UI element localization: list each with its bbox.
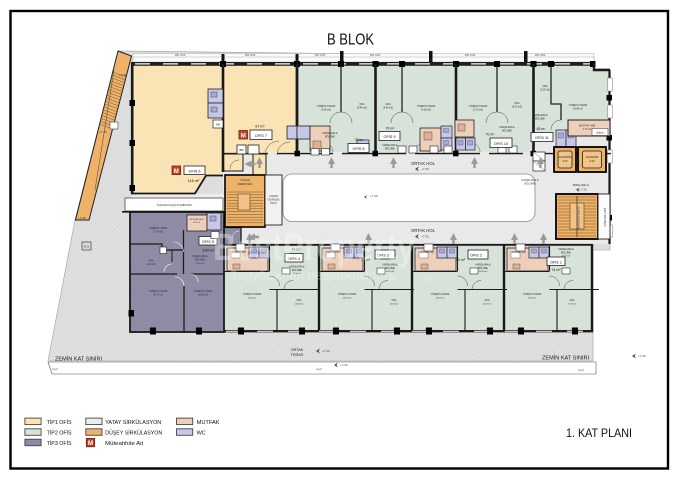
svg-text:NİŞ.ÇK.: NİŞ.ÇK. — [486, 328, 494, 331]
svg-text:OFİS 7: OFİS 7 — [255, 133, 267, 138]
svg-text:KARŞILAMA &: KARŞILAMA & — [322, 132, 338, 135]
svg-text:OFİS 10: OFİS 10 — [494, 141, 508, 146]
svg-text:16.80 m2: 16.80 m2 — [198, 294, 208, 296]
svg-text:17.72 m2: 17.72 m2 — [568, 303, 578, 305]
svg-text:286 CM6: 286 CM6 — [175, 53, 186, 57]
svg-text:SERVİS MERDİVENİ: SERVİS MERDİVENİ — [577, 207, 580, 230]
svg-text:OFİS 11: OFİS 11 — [535, 135, 549, 140]
svg-text:+7.30: +7.30 — [99, 130, 107, 134]
svg-text:1. KAT PLANI: 1. KAT PLANI — [566, 428, 632, 440]
svg-text:TERAS: TERAS — [291, 353, 304, 357]
svg-text:NİŞ.ÇK.: NİŞ.ÇK. — [237, 328, 245, 331]
svg-text:(6.39 m2): (6.39 m2) — [321, 109, 331, 111]
svg-text:YÖNETİCİ ODASI: YÖNETİCİ ODASI — [338, 293, 357, 296]
svg-text:(2.70 m2): (2.70 m2) — [473, 109, 483, 111]
svg-text:Зарубежная недвижимость: Зарубежная недвижимость — [230, 268, 396, 283]
svg-text:D.3: D.3 — [84, 245, 89, 249]
svg-text:YÖNETİCİ ODASI: YÖNETİCİ ODASI — [149, 227, 168, 230]
svg-text:M: M — [241, 133, 246, 139]
svg-text:YANGIN KAÇIŞ KORİDORU: YANGIN KAÇIŞ KORİDORU — [156, 202, 192, 207]
svg-text:seçil: seçil — [52, 367, 58, 371]
svg-text:116 m²: 116 m² — [188, 179, 200, 183]
svg-text:BİNA HOLÜ: BİNA HOLÜ — [573, 182, 589, 187]
svg-text:WC: WC — [197, 431, 207, 437]
svg-text:TİP3 OFİS: TİP3 OFİS — [47, 440, 72, 447]
svg-text:286 CM6: 286 CM6 — [370, 53, 381, 57]
svg-text:ODA: ODA — [515, 102, 520, 105]
svg-text:9.10 m2: 9.10 m2 — [147, 264, 156, 266]
svg-text:BB: BB — [239, 148, 243, 152]
svg-text:düğüm: düğüm — [596, 131, 604, 135]
svg-text:ODA: ODA — [543, 85, 548, 88]
svg-text:MUTFAK NİŞİ: MUTFAK NİŞİ — [420, 251, 434, 254]
svg-text:NİŞ.ÇK.: NİŞ.ÇK. — [571, 328, 579, 331]
svg-text:ASANSÖR: ASANSÖR — [559, 155, 572, 159]
svg-text:seçil: seçil — [316, 367, 322, 371]
svg-text:B BLOK: B BLOK — [327, 32, 374, 49]
svg-text:14.20 m2: 14.20 m2 — [483, 303, 493, 305]
svg-text:14.20 m2: 14.20 m2 — [295, 303, 305, 305]
svg-text:286 CM6: 286 CM6 — [535, 53, 546, 57]
svg-text:(9.49 m2): (9.49 m2) — [357, 107, 367, 109]
svg-text:BÖLÜME: BÖLÜME — [195, 259, 205, 262]
svg-text:KARŞILAMA &: KARŞILAMA & — [192, 255, 208, 258]
svg-text:MUTFAK: MUTFAK — [197, 420, 220, 426]
svg-text:TİP1 OFİS: TİP1 OFİS — [47, 419, 72, 426]
svg-text:HOLÜ: HOLÜ — [270, 202, 277, 205]
svg-text:(7.75 m2): (7.75 m2) — [153, 231, 163, 233]
svg-text:BestProperty: BestProperty — [213, 227, 415, 269]
svg-text:+7.30: +7.30 — [322, 349, 330, 353]
svg-text:YÖNETİCİ ODASI: YÖNETİCİ ODASI — [317, 105, 336, 108]
svg-text:6.30: 6.30 — [590, 160, 595, 163]
svg-text:(9.70 m2): (9.70 m2) — [512, 106, 522, 108]
svg-text:YÖNETİCİ ODASI: YÖNETİCİ ODASI — [243, 293, 262, 296]
svg-text:+7.30: +7.30 — [340, 363, 348, 367]
svg-text:(9.90 m2): (9.90 m2) — [196, 263, 205, 265]
svg-text:29.60 m2: 29.60 m2 — [528, 297, 538, 299]
svg-text:+7.30: +7.30 — [638, 354, 646, 358]
svg-text:ODA: ODA — [360, 103, 365, 106]
svg-text:ODA: ODA — [570, 299, 575, 302]
svg-text:14.20 m2: 14.20 m2 — [390, 303, 400, 305]
svg-text:ZEMİN KAT SINIRI: ZEMİN KAT SINIRI — [542, 355, 589, 362]
svg-text:70 m²: 70 m² — [355, 138, 365, 142]
svg-text:YÖNETİCİ ODASI: YÖNETİCİ ODASI — [194, 290, 213, 293]
svg-text:+7.30: +7.30 — [421, 167, 429, 171]
svg-text:286 CM6: 286 CM6 — [245, 53, 256, 57]
svg-text:24.00 m2: 24.00 m2 — [436, 297, 446, 299]
svg-text:74 m²: 74 m² — [551, 268, 561, 272]
svg-text:(6.39 m2): (6.39 m2) — [421, 109, 431, 111]
svg-text:OFİS 6: OFİS 6 — [188, 168, 200, 173]
svg-text:YATAY SİRKÜLASYON: YATAY SİRKÜLASYON — [105, 419, 161, 426]
svg-text:(9.49 m2): (9.49 m2) — [383, 107, 393, 109]
svg-text:+7.30: +7.30 — [579, 188, 587, 192]
svg-text:BÖLÜME: BÖLÜME — [561, 251, 571, 254]
svg-text:+7.30: +7.30 — [370, 194, 378, 198]
svg-text:YÖNETİCİ ODASI: YÖNETİCİ ODASI — [149, 290, 168, 293]
svg-text:ZEMİN KAT SINIRI: ZEMİN KAT SINIRI — [55, 356, 102, 363]
svg-text:ORTAK HOL: ORTAK HOL — [411, 161, 435, 166]
svg-text:20.95 m2: 20.95 m2 — [573, 108, 583, 110]
svg-text:ODA: ODA — [386, 103, 391, 106]
svg-text:4.76 m2: 4.76 m2 — [583, 128, 592, 131]
svg-text:KARŞILAMA &: KARŞILAMA & — [521, 178, 538, 182]
svg-text:MUTFAK NİŞİ: MUTFAK NİŞİ — [512, 251, 526, 254]
svg-text:seçil: seçil — [578, 368, 584, 372]
svg-text:BÖLÜME: BÖLÜME — [385, 147, 395, 150]
svg-text:Müteahhite Ait: Müteahhite Ait — [105, 441, 143, 447]
svg-text:70 m²: 70 m² — [486, 133, 496, 137]
svg-text:KARŞILAMA &: KARŞILAMA & — [475, 264, 491, 267]
svg-text:NİŞ.ÇK.: NİŞ.ÇK. — [298, 328, 306, 331]
svg-text:NİŞ.ÇK.: NİŞ.ÇK. — [393, 328, 401, 331]
svg-text:24.00 m2: 24.00 m2 — [248, 297, 258, 299]
svg-text:ODA: ODA — [149, 260, 154, 263]
svg-text:NİŞ.ÇK.: NİŞ.ÇK. — [195, 328, 203, 331]
svg-text:(1.30 m2): (1.30 m2) — [540, 89, 550, 91]
svg-text:OFİS 1: OFİS 1 — [550, 259, 562, 264]
svg-text:YÖNETİCİ ODASI: YÖNETİCİ ODASI — [417, 105, 436, 108]
svg-text:YÖNETİCİ ODASI: YÖNETİCİ ODASI — [523, 293, 542, 296]
svg-text:63 m²: 63 m² — [537, 127, 547, 131]
svg-text:KARŞILAMA &: KARŞILAMA & — [558, 248, 574, 251]
svg-text:KARŞILAMA &: KARŞILAMA & — [382, 144, 398, 147]
svg-text:YÖNETİCİ ODASI: YÖNETİCİ ODASI — [569, 104, 588, 107]
svg-text:YÖNETİCİ ODASI: YÖNETİCİ ODASI — [469, 105, 488, 108]
svg-text:TİP2 OFİS: TİP2 OFİS — [47, 430, 72, 437]
svg-text:70 m²: 70 m² — [386, 127, 396, 131]
svg-text:286 CM6: 286 CM6 — [315, 53, 326, 57]
svg-text:26.75 m2: 26.75 m2 — [153, 294, 163, 296]
svg-text:NİŞ.ÇK.: NİŞ.ÇK. — [332, 328, 340, 331]
svg-text:ODA: ODA — [485, 299, 490, 302]
svg-text:BÖLÜME: BÖLÜME — [325, 135, 335, 138]
svg-text:ODA: ODA — [297, 299, 302, 302]
svg-text:BÖLÜME: BÖLÜME — [535, 117, 545, 120]
svg-text:+4.00: +4.00 — [119, 73, 127, 77]
svg-text:BÖLÜME: BÖLÜME — [478, 267, 488, 270]
svg-text:M: M — [174, 169, 179, 175]
svg-text:ASANSÖR: ASANSÖR — [586, 155, 599, 159]
svg-text:ODA: ODA — [392, 299, 397, 302]
svg-text:67 m²: 67 m² — [255, 125, 265, 129]
svg-text:NİŞ.ÇK.: NİŞ.ÇK. — [517, 328, 525, 331]
svg-text:KARŞILAMA &: KARŞILAMA & — [499, 126, 515, 129]
svg-text:OFİS 9: OFİS 9 — [383, 134, 395, 139]
svg-text:YANGIN: YANGIN — [240, 178, 250, 182]
svg-text:OFİS 8: OFİS 8 — [352, 146, 364, 151]
svg-text:BÖLÜME: BÖLÜME — [525, 182, 536, 186]
svg-text:+7.30: +7.30 — [421, 235, 429, 239]
svg-text:286 CM6: 286 CM6 — [465, 53, 476, 57]
svg-text:®: ® — [424, 275, 431, 285]
svg-text:24.00 m2: 24.00 m2 — [343, 297, 353, 299]
svg-text:ORTAK: ORTAK — [291, 348, 304, 352]
svg-text:6.30: 6.30 — [563, 160, 568, 163]
svg-text:74 m²: 74 m² — [456, 258, 466, 262]
svg-text:OFİS 2: OFİS 2 — [470, 252, 482, 257]
svg-text:BÖLÜME: BÖLÜME — [502, 129, 512, 132]
svg-text:+7.30: +7.30 — [78, 216, 86, 220]
svg-text:DÜŞEY SİRKÜLASYON: DÜŞEY SİRKÜLASYON — [105, 430, 162, 437]
svg-text:KB: KB — [216, 123, 220, 127]
svg-text:KARŞILAMA &: KARŞILAMA & — [532, 114, 548, 117]
svg-text:NİŞ.ÇK.: NİŞ.ÇK. — [425, 328, 433, 331]
svg-text:M: M — [88, 440, 93, 447]
svg-text:NİŞ.ÇK.: NİŞ.ÇK. — [149, 328, 157, 331]
svg-text:14.90 m2: 14.90 m2 — [479, 271, 489, 273]
svg-text:4.70 m2: 4.70 m2 — [193, 222, 201, 224]
svg-text:YÖNETİCİ ODASI: YÖNETİCİ ODASI — [431, 293, 450, 296]
svg-text:MUTFAK NİŞİ: MUTFAK NİŞİ — [190, 218, 204, 221]
